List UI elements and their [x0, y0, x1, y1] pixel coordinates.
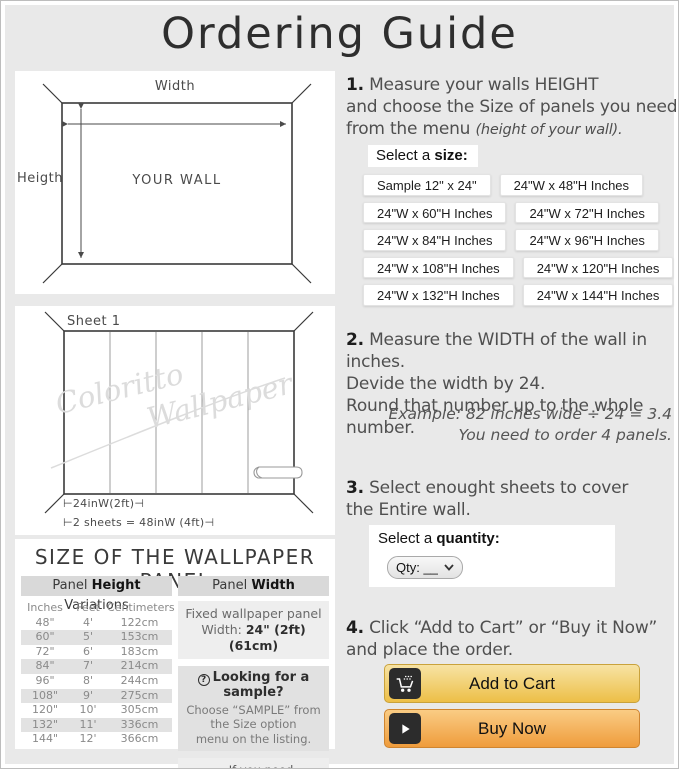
select-size-label: Select a size:	[368, 145, 478, 167]
size-option-132h[interactable]: 24"W x 132"H Inches	[363, 284, 514, 306]
assistance-line1: ?If you need assistance:	[180, 763, 327, 769]
buy-now-label: Buy Now	[421, 719, 603, 739]
page-title: Ordering Guide	[1, 9, 678, 59]
two-sheet-dimension-note: ⊢2 sheets = 48inW (4ft)⊣	[63, 516, 214, 529]
table-row: 60" 5' 153cm	[21, 630, 172, 645]
your-wall-label: YOUR WALL	[62, 173, 292, 188]
size-option-108h[interactable]: 24"W x 108"H Inches	[363, 257, 514, 279]
fixed-width-line2: Width: 24" (2ft) (61cm)	[180, 622, 327, 654]
step-3-text: 3. Select enought sheets to cover the En…	[346, 477, 679, 521]
width-label: Width	[15, 79, 335, 94]
panel-size-section: SIZE OF THE WALLPAPER PANEL Panel Height…	[15, 539, 335, 749]
cart-icon	[389, 668, 421, 699]
add-to-cart-button[interactable]: Add to Cart	[384, 664, 640, 703]
table-row: 84" 7' 214cm	[21, 659, 172, 674]
size-option-96h[interactable]: 24"W x 96"H Inches	[515, 229, 658, 251]
table-row: 72" 6' 183cm	[21, 645, 172, 660]
table-row: 96" 8' 244cm	[21, 674, 172, 689]
size-option-sample[interactable]: Sample 12" x 24"	[363, 174, 491, 196]
question-mark-icon: ?	[198, 674, 210, 686]
sheet1-label: Sheet 1	[67, 314, 121, 329]
step-4-text: 4. Click “Add to Cart” or “Buy it Now” a…	[346, 617, 679, 661]
table-row: 48" 4' 122cm	[21, 616, 172, 631]
col-feet: Feet	[69, 601, 107, 616]
size-option-48h[interactable]: 24"W x 48"H Inches	[500, 174, 643, 196]
add-to-cart-label: Add to Cart	[421, 674, 603, 694]
size-option-60h[interactable]: 24"W x 60"H Inches	[363, 202, 506, 224]
height-header-bold: Height	[92, 578, 141, 593]
size-option-72h[interactable]: 24"W x 72"H Inches	[515, 202, 658, 224]
quantity-dropdown-value: Qty: __	[396, 560, 438, 575]
select-quantity-label: Select a quantity:	[378, 530, 500, 547]
buy-now-button[interactable]: Buy Now	[384, 709, 640, 748]
panel-width-dimension-note: ⊢24inW(2ft)⊣	[63, 497, 144, 510]
width-header-bold: Width	[251, 578, 295, 593]
panel-width-header: Panel Width	[178, 576, 329, 596]
quantity-selector-box: Select a quantity: Qty: __	[369, 525, 615, 587]
height-label: Heigth	[17, 171, 61, 186]
col-inches: Inches	[21, 601, 69, 616]
step-1-text: 1. Measure your walls HEIGHT and choose …	[346, 74, 679, 141]
height-variations-table: Inches Feet Centimeters 48" 4' 122cm 60"…	[21, 601, 172, 747]
sample-box-title: ?Looking for a sample?	[180, 671, 327, 701]
table-row: 144" 12' 366cm	[21, 732, 172, 747]
ordering-guide-page: Ordering Guide Width Heigth Y	[0, 0, 679, 769]
width-header-pre: Panel	[212, 578, 251, 593]
panel-width-info-column: Fixed wallpaper panel Width: 24" (2ft) (…	[178, 601, 329, 769]
fixed-width-line1: Fixed wallpaper panel	[180, 606, 327, 622]
table-row: 120" 10' 305cm	[21, 703, 172, 718]
sample-info-box: ?Looking for a sample? Choose “SAMPLE” f…	[178, 666, 329, 751]
height-variations-header: Panel Height Variations	[21, 576, 172, 596]
size-option-144h[interactable]: 24"W x 144"H Inches	[523, 284, 674, 306]
size-option-120h[interactable]: 24"W x 120"H Inches	[523, 257, 674, 279]
example-note: Example: 82 inches wide ÷ 24 = 3.4 You n…	[346, 404, 672, 446]
size-option-84h[interactable]: 24"W x 84"H Inches	[363, 229, 506, 251]
height-header-pre: Panel	[52, 578, 91, 593]
chevron-down-icon	[444, 564, 454, 571]
fixed-width-box: Fixed wallpaper panel Width: 24" (2ft) (…	[178, 601, 329, 659]
wallpaper-roll-icon	[254, 467, 302, 478]
table-row: 108" 9' 275cm	[21, 689, 172, 704]
wall-diagram: Width Heigth YOUR WALL	[15, 71, 335, 294]
sheet-diagram: Sheet 1 Coloritto Wallpaper ⊢24inW(2ft)⊣…	[15, 306, 335, 535]
table-header-row: Inches Feet Centimeters	[21, 601, 172, 616]
assistance-info-box: ?If you need assistance: how much to ord…	[178, 758, 329, 769]
quantity-dropdown[interactable]: Qty: __	[387, 556, 463, 579]
table-row: 132" 11' 336cm	[21, 718, 172, 733]
col-centimeters: Centimeters	[107, 601, 172, 616]
size-options-grid: Sample 12" x 24" 24"W x 48"H Inches 24"W…	[363, 174, 679, 312]
play-icon	[389, 713, 421, 744]
